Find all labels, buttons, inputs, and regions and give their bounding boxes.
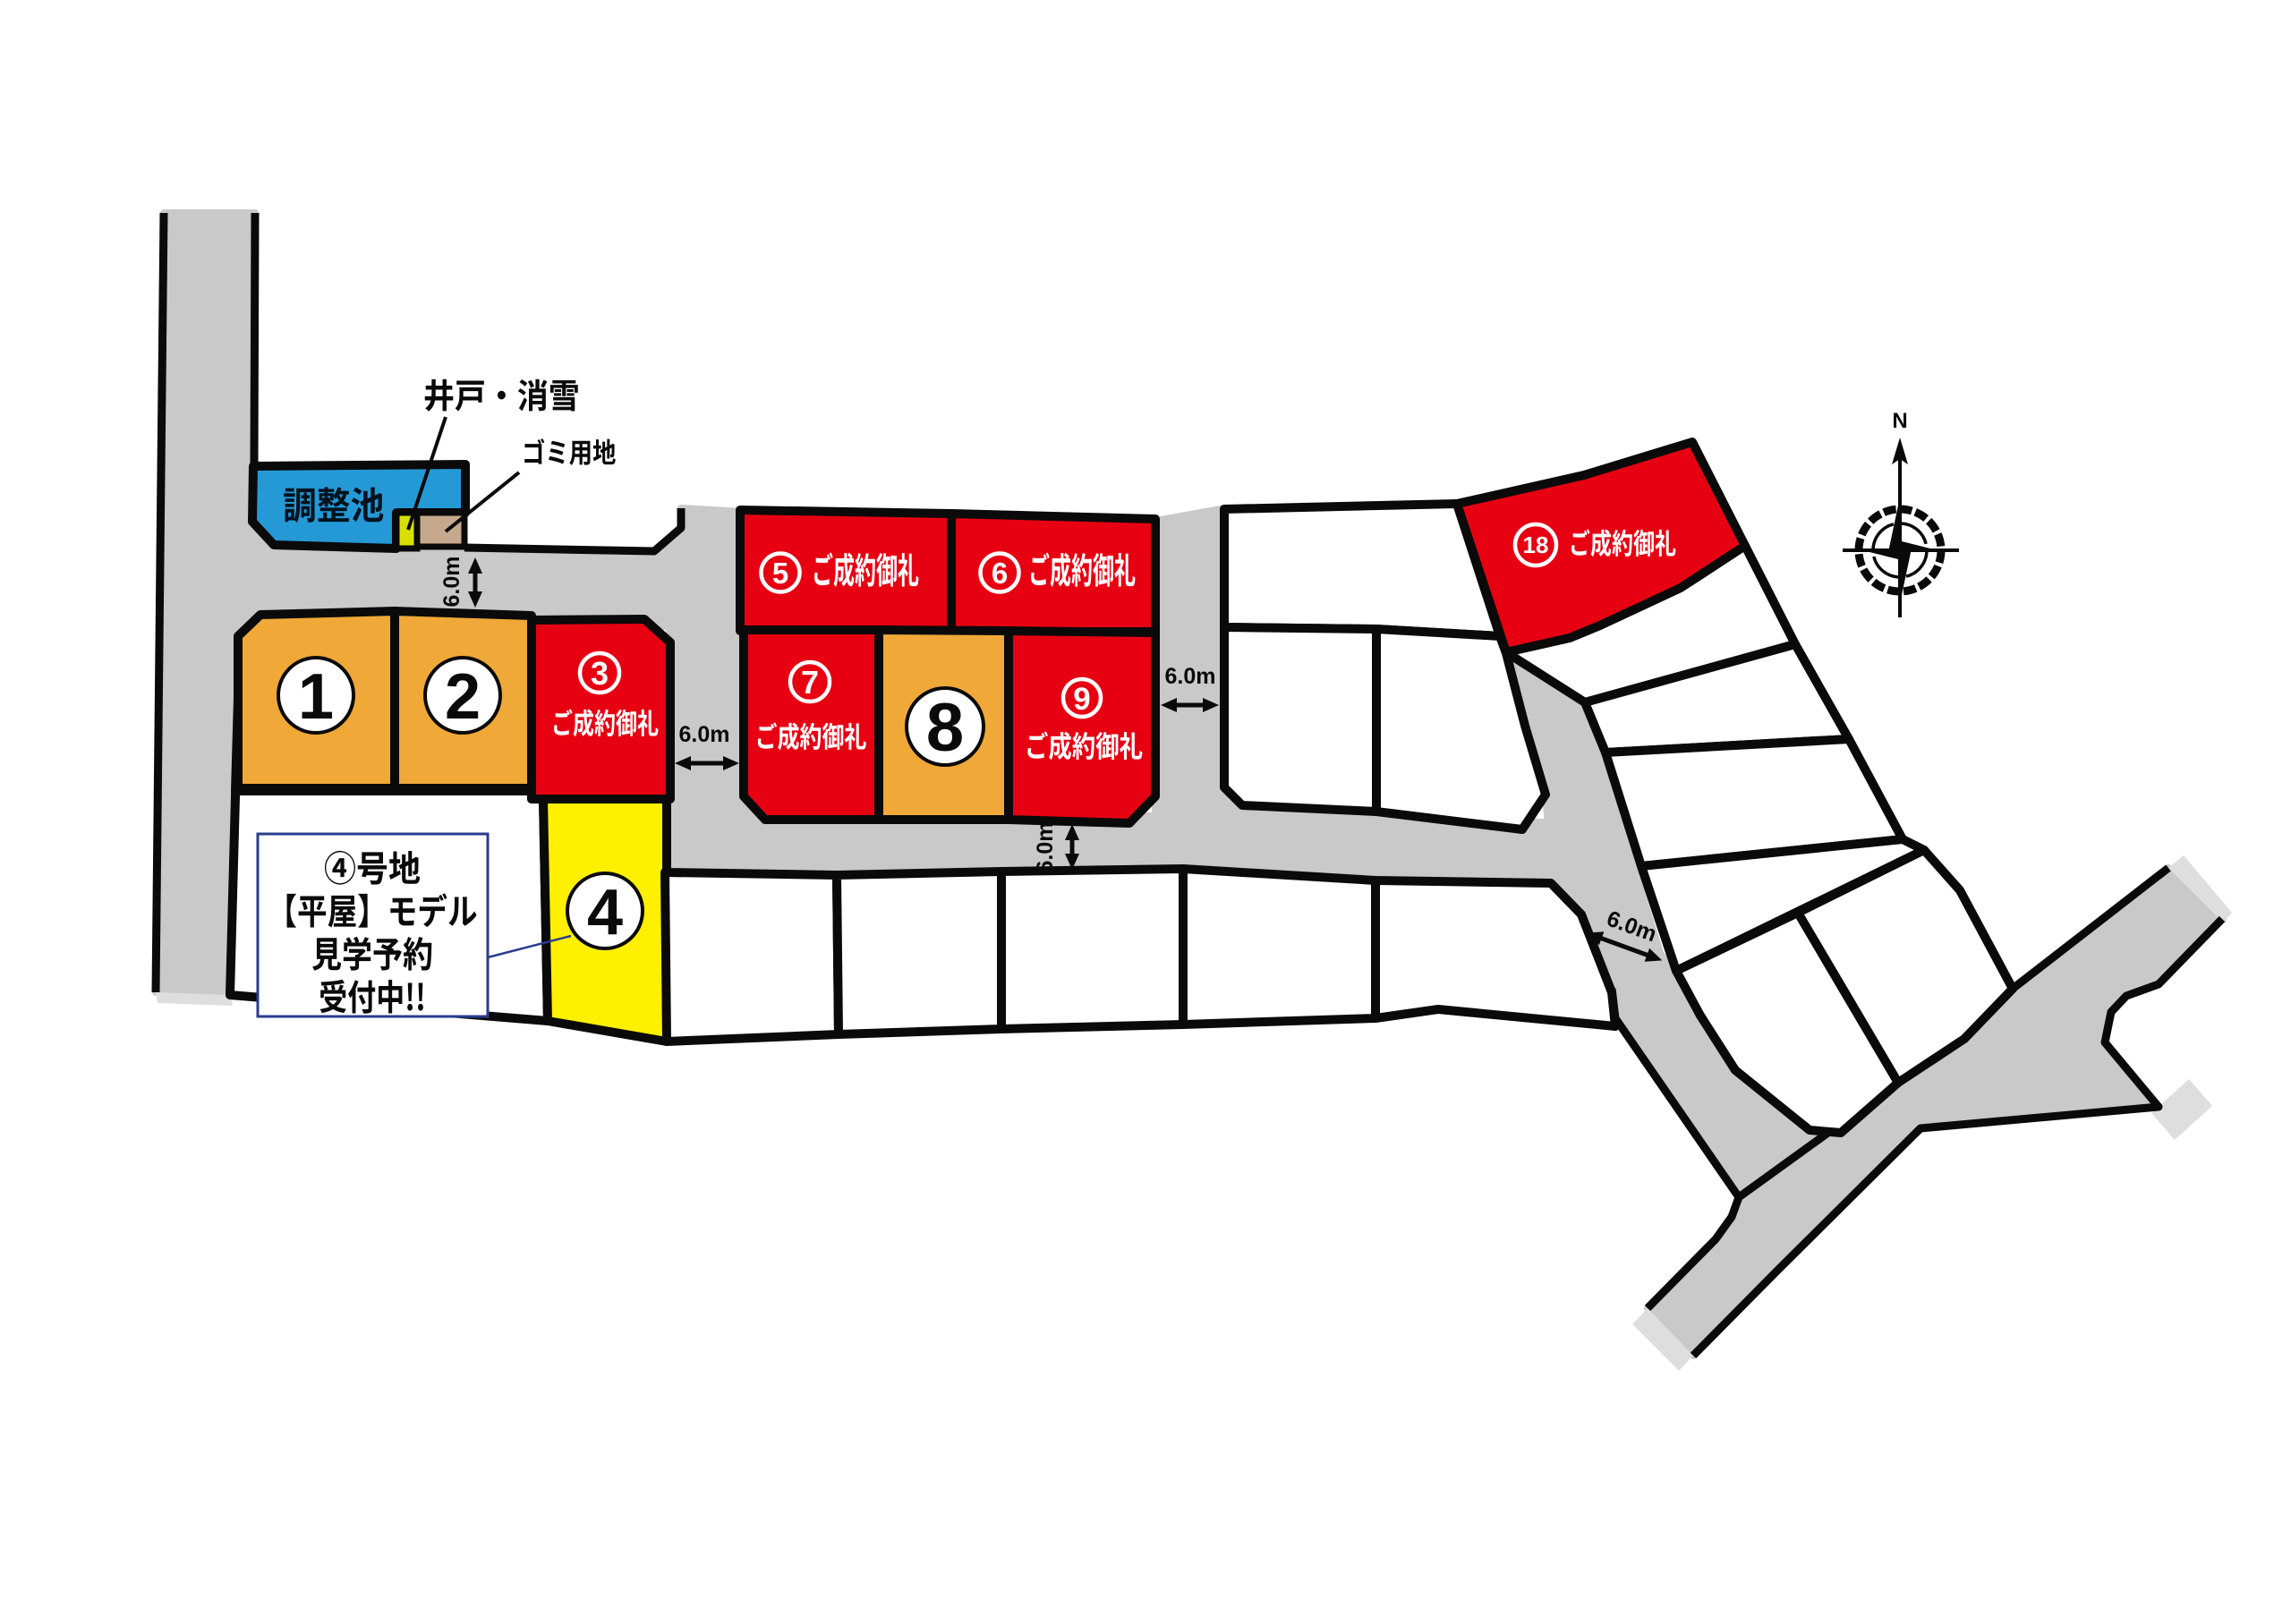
svg-text:6.0m: 6.0m <box>439 557 464 608</box>
svg-text:2: 2 <box>445 661 481 733</box>
svg-text:6.0m: 6.0m <box>1165 664 1216 689</box>
svg-text:1: 1 <box>298 661 334 733</box>
svg-text:6.0m: 6.0m <box>679 722 730 747</box>
svg-text:7: 7 <box>801 664 819 701</box>
svg-text:3: 3 <box>591 655 609 692</box>
svg-text:5: 5 <box>772 557 788 590</box>
svg-text:4: 4 <box>587 877 623 948</box>
svg-text:9: 9 <box>1073 682 1090 717</box>
svg-text:8: 8 <box>926 690 964 766</box>
svg-text:6.0m: 6.0m <box>1033 822 1058 873</box>
svg-text:N: N <box>1892 409 1907 433</box>
svg-text:18: 18 <box>1523 531 1549 558</box>
svg-text:6: 6 <box>992 557 1008 590</box>
